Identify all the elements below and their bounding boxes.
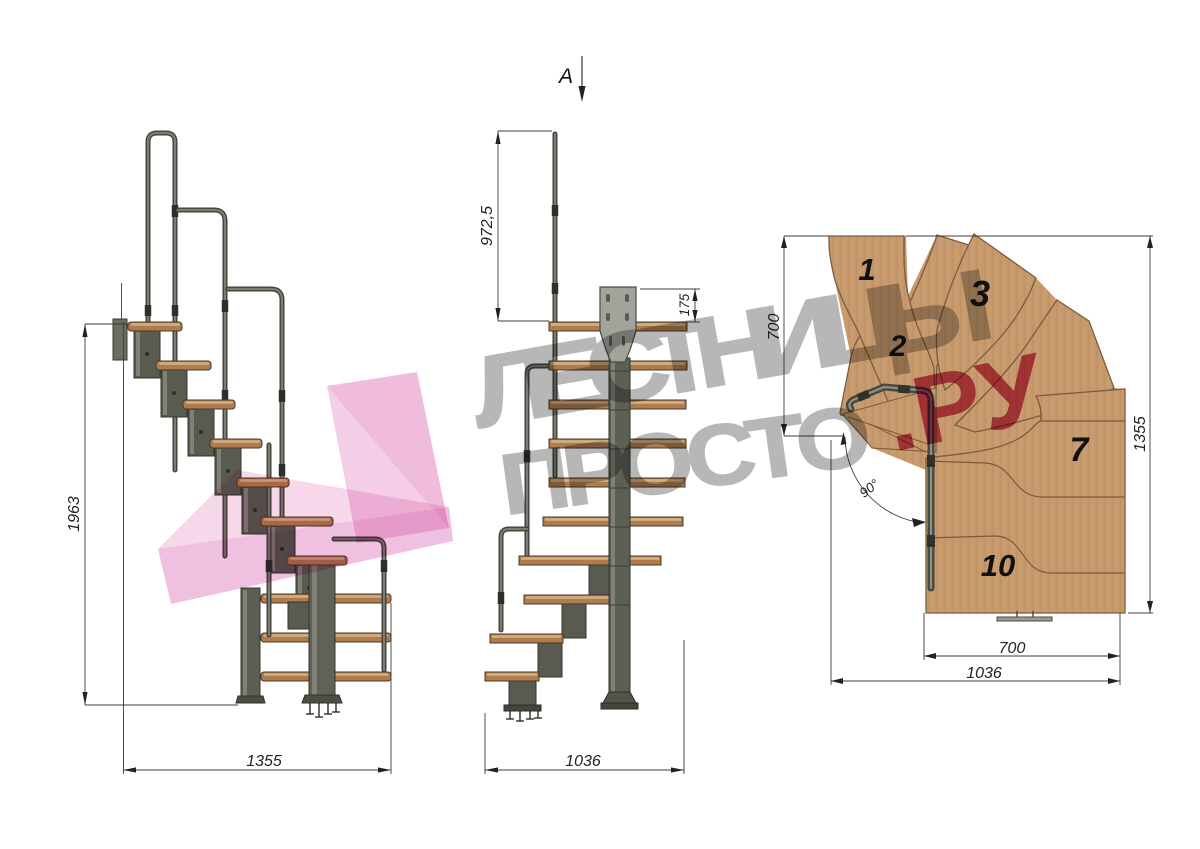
svg-text:1355: 1355	[246, 753, 282, 770]
svg-text:A: A	[557, 65, 573, 88]
svg-text:1036: 1036	[966, 665, 1002, 682]
svg-text:700: 700	[999, 640, 1026, 657]
svg-text:10: 10	[981, 548, 1015, 583]
svg-text:7: 7	[1070, 431, 1091, 469]
svg-text:1355: 1355	[1132, 416, 1149, 452]
svg-text:972,5: 972,5	[479, 206, 496, 246]
svg-text:1963: 1963	[66, 496, 83, 532]
svg-text:1036: 1036	[565, 753, 601, 770]
